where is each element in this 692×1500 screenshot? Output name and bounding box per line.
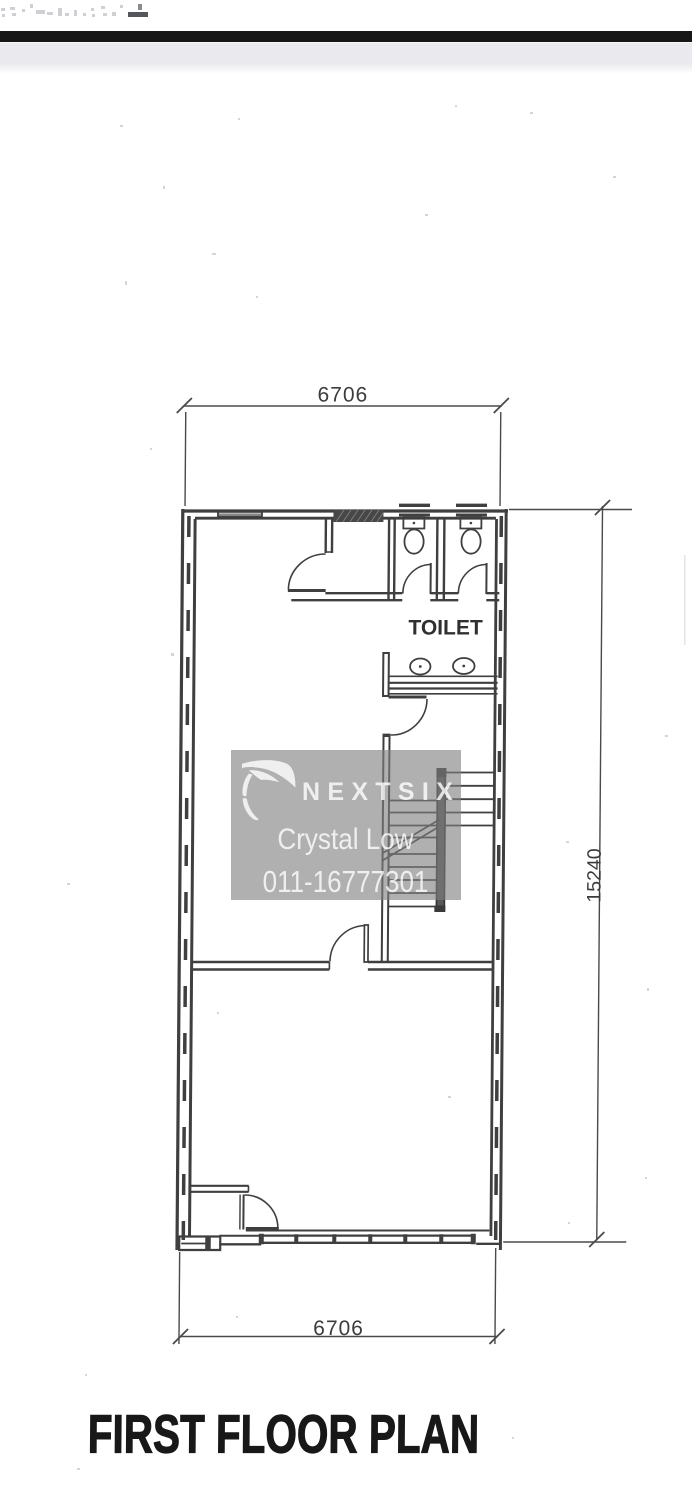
svg-text:6706: 6706 — [317, 384, 368, 407]
svg-text:15240: 15240 — [583, 848, 605, 902]
svg-text:6706: 6706 — [313, 1317, 364, 1340]
svg-text:011-16777301: 011-16777301 — [263, 865, 429, 899]
svg-text:Crystal Low: Crystal Low — [277, 822, 414, 855]
svg-text:TOILET: TOILET — [408, 617, 483, 640]
svg-text:FIRST FLOOR PLAN: FIRST FLOOR PLAN — [87, 1405, 479, 1465]
svg-text:NEXTSIX: NEXTSIX — [302, 778, 460, 806]
